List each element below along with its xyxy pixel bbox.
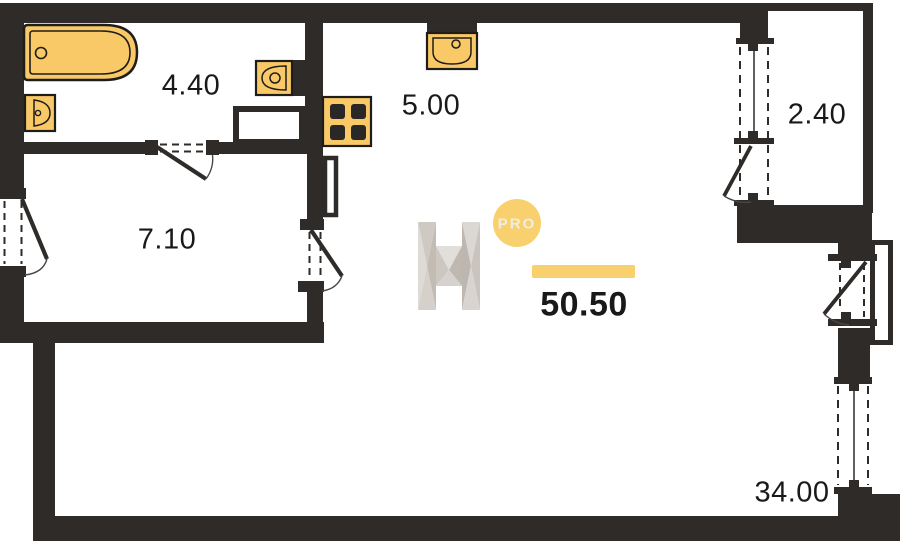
balcony-right-wall (863, 3, 873, 213)
bathtub-icon (24, 25, 137, 80)
kitchen-area-label: 5.00 (402, 90, 460, 123)
washbasin-icon (256, 61, 292, 95)
bathroom-bottom-wall-left (24, 142, 151, 154)
balcony-window (734, 38, 774, 206)
living-room-area-label: 34.00 (754, 477, 829, 510)
bathroom-door (145, 140, 219, 179)
balcony-top-wall (740, 3, 873, 11)
living-room-balcony-door (824, 254, 877, 326)
total-area-label: 50.50 (540, 286, 628, 325)
floor-plan-drawing (0, 0, 900, 541)
balcony-area-label: 2.40 (788, 99, 846, 132)
right-wall-between-openings (838, 328, 870, 378)
top-wall (0, 3, 768, 23)
hallway-right-wall-upper (307, 142, 323, 224)
hallway-door (298, 219, 342, 292)
bathroom-area-label: 4.40 (162, 70, 220, 103)
hallway-right-wall-lower (307, 292, 323, 343)
entrance-door (0, 188, 47, 277)
bottom-right-wall (838, 494, 900, 541)
stove-icon (323, 97, 371, 146)
watermark-h-logo (418, 222, 480, 310)
pro-badge-label: PRO (498, 216, 537, 233)
total-area-underline (532, 265, 635, 278)
vent-shaft-vertical (325, 158, 336, 215)
bottom-wall (33, 516, 839, 541)
left-wall-upper (0, 3, 24, 196)
hallway-area-label: 7.10 (138, 224, 196, 257)
kitchen-sink-icon (427, 23, 477, 69)
vent-shaft-horizontal (236, 109, 302, 142)
living-room-window (834, 377, 872, 494)
toilet-icon (25, 95, 55, 131)
living-room-left-wall (33, 322, 55, 541)
balcony-bottom-wall (737, 205, 872, 243)
floor-plan: 4.40 5.00 7.10 2.40 34.00 PRO 50.50 (0, 0, 900, 541)
balcony-door (724, 146, 751, 202)
